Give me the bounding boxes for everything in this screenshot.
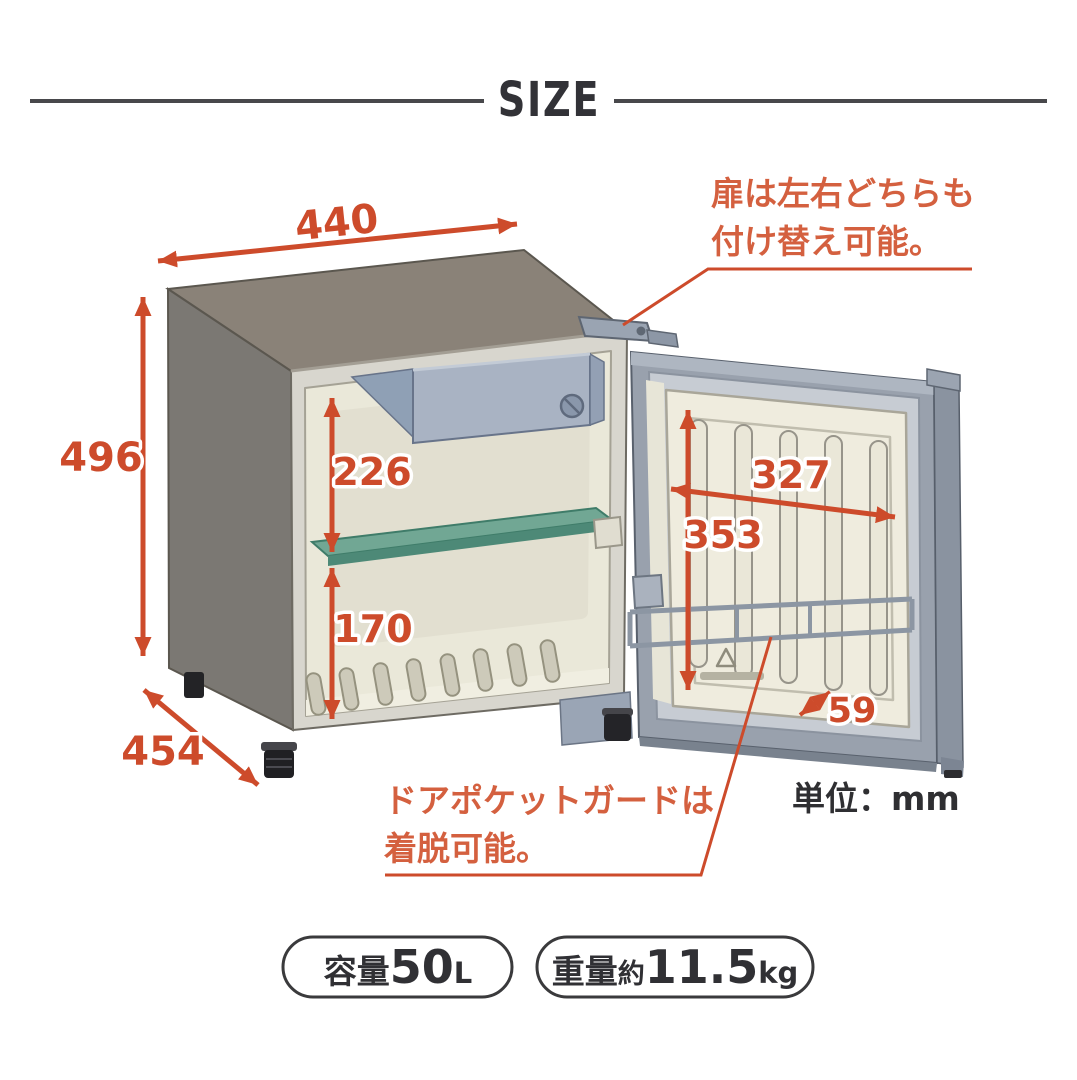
door-open xyxy=(630,352,964,778)
size-diagram: SIZE xyxy=(0,0,1077,1080)
label-outer-depth: 454 xyxy=(121,729,205,775)
page-title: SIZE xyxy=(498,73,600,128)
weight-value: 11.5 xyxy=(645,940,759,994)
weight-unit: kg xyxy=(758,956,798,990)
shelf-bracket xyxy=(594,517,622,548)
cabinet xyxy=(168,250,678,778)
label-pocket-depth: 59 xyxy=(828,691,877,731)
foot-front-left xyxy=(264,750,294,778)
size-diagram-page: SIZE xyxy=(0,0,1077,1080)
cabinet-interior xyxy=(305,351,622,716)
door-note-line1: 扉は左右どちらも xyxy=(711,174,975,213)
pocket-note-line1: ドアポケットガードは xyxy=(384,781,714,820)
label-interior-lower: 170 xyxy=(333,607,412,651)
hinge-tab xyxy=(647,330,678,347)
door-rib xyxy=(870,441,887,695)
capacity-value: 50 xyxy=(390,940,454,994)
capacity-label: 容量 xyxy=(324,952,390,991)
label-outer-height: 496 xyxy=(59,435,143,481)
weight-approx: 約 xyxy=(618,958,645,990)
unit-label: 単位：mm xyxy=(792,779,960,818)
capacity-unit: L xyxy=(454,956,472,990)
label-door-width: 327 xyxy=(751,453,830,497)
foot-front-right xyxy=(604,714,631,741)
door-note-line2: 付け替え可能。 xyxy=(711,222,942,261)
foot-front-left-cap xyxy=(261,742,297,751)
weight-badge: 重量約11.5kg xyxy=(537,937,813,997)
spec-badges: 容量50L 重量約11.5kg xyxy=(283,937,813,997)
label-door-height: 353 xyxy=(683,513,762,557)
capacity-badge: 容量50L xyxy=(283,937,512,997)
molded-label-text xyxy=(700,672,764,680)
weight-label: 重量 xyxy=(552,952,618,991)
door-pin-tip xyxy=(944,770,962,778)
hinge-pin xyxy=(637,327,646,336)
label-interior-upper: 226 xyxy=(332,450,411,494)
door-edge-bar xyxy=(934,382,963,767)
label-outer-width: 440 xyxy=(293,196,381,250)
door-note-callout-line xyxy=(623,269,972,325)
foot-back-left xyxy=(184,672,204,698)
unit-note: 単位：mm xyxy=(792,779,960,818)
title-header: SIZE xyxy=(30,73,1047,128)
pocket-note-line2: 着脱可能。 xyxy=(384,829,549,868)
rack-bracket xyxy=(633,575,663,608)
freezer-side xyxy=(590,354,604,425)
